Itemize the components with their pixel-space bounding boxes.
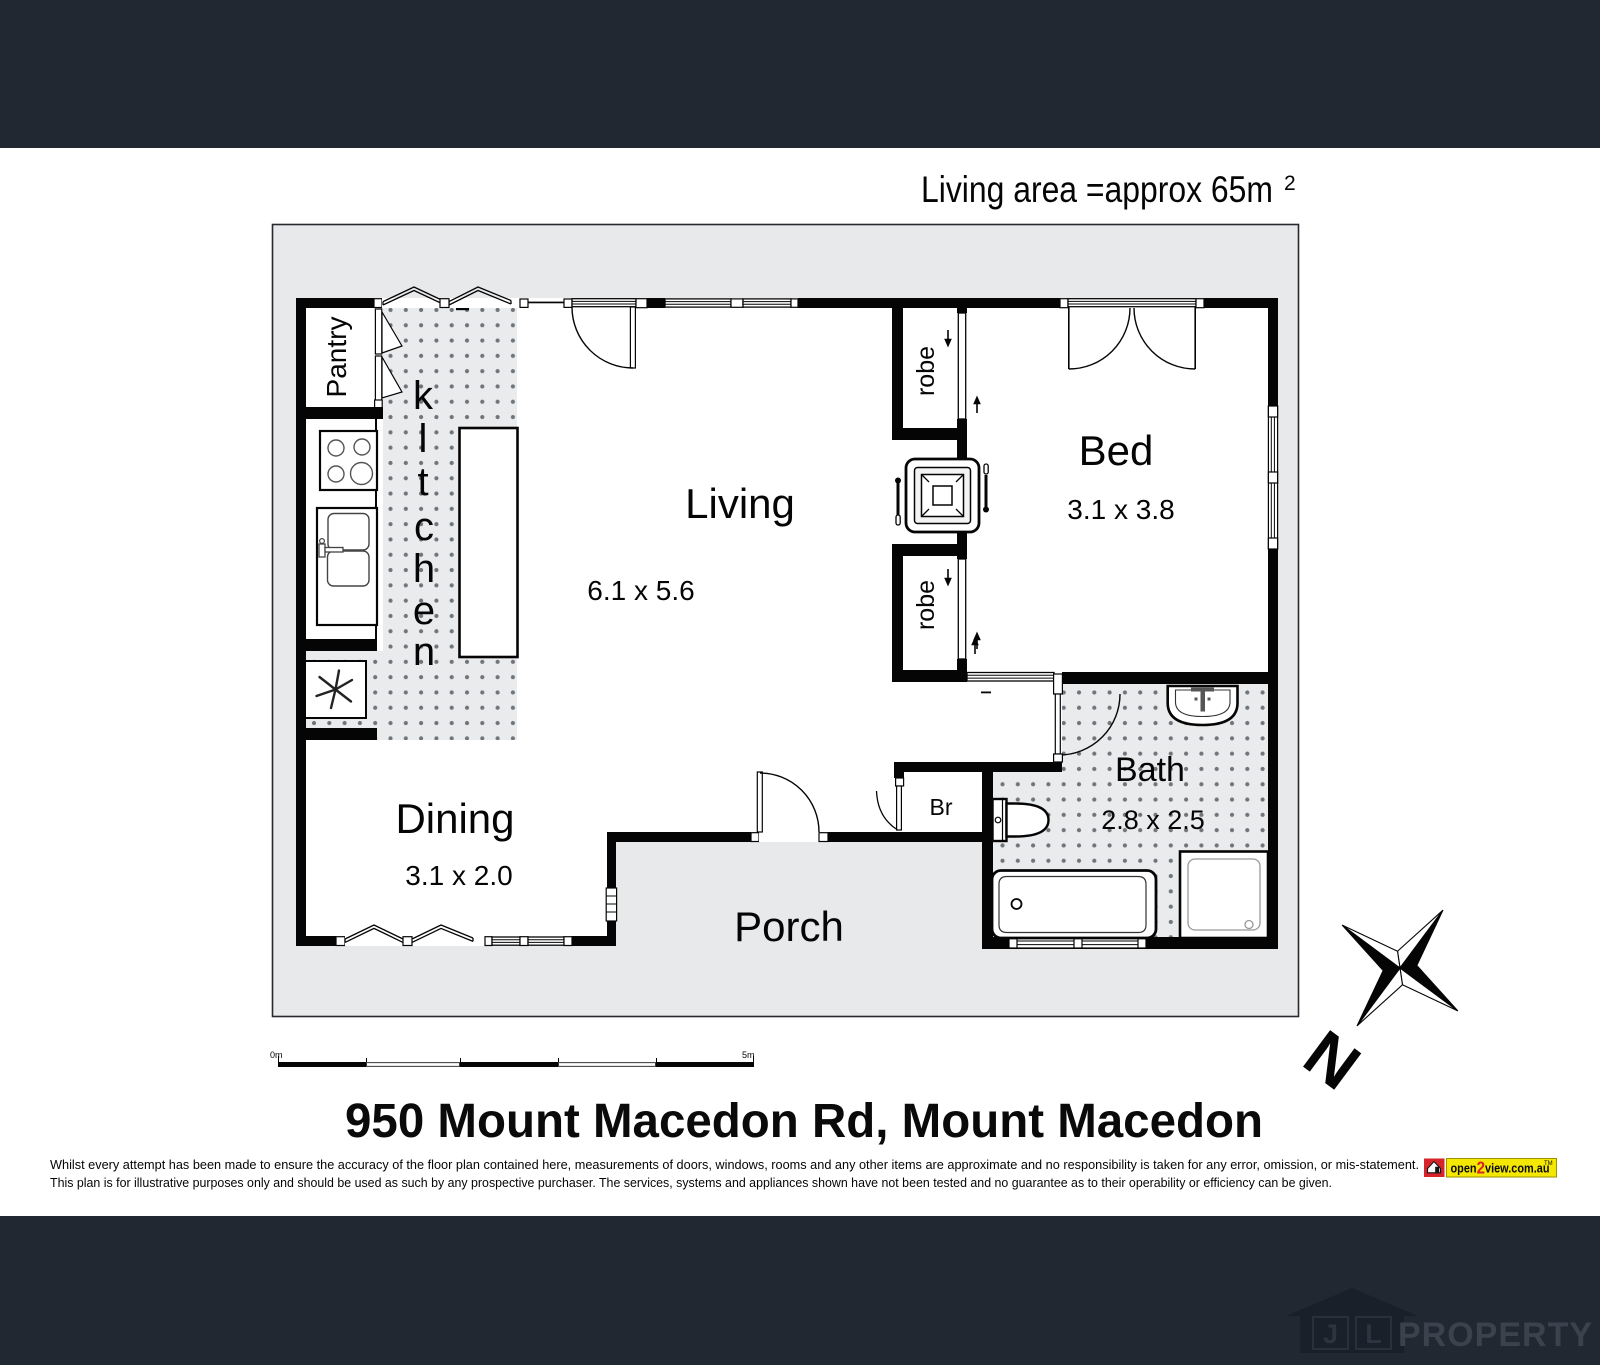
svg-text:Pantry: Pantry	[321, 317, 352, 398]
svg-text:robe: robe	[912, 346, 940, 396]
svg-text:c: c	[414, 505, 434, 549]
svg-text:This plan is for illustrative: This plan is for illustrative purposes o…	[50, 1175, 1332, 1190]
svg-text:n: n	[413, 630, 435, 674]
svg-text:0m: 0m	[270, 1050, 283, 1060]
svg-text:Whilst every attempt has been: Whilst every attempt has been made to en…	[50, 1157, 1419, 1172]
svg-text:Porch: Porch	[734, 903, 844, 950]
svg-text:J: J	[1323, 1319, 1338, 1349]
svg-text:5m: 5m	[742, 1050, 755, 1060]
svg-text:3.1 x 2.0: 3.1 x 2.0	[405, 860, 512, 891]
svg-text:TM: TM	[1544, 1161, 1553, 1167]
svg-text:t: t	[417, 460, 428, 504]
svg-text:Br: Br	[930, 794, 953, 820]
svg-text:L: L	[1365, 1319, 1382, 1349]
svg-text:l: l	[419, 417, 428, 461]
svg-text:6.1 x 5.6: 6.1 x 5.6	[587, 575, 694, 606]
svg-text:h: h	[413, 547, 435, 591]
svg-text:Dining: Dining	[395, 795, 514, 842]
svg-text:2: 2	[1284, 172, 1296, 195]
svg-text:Living: Living	[685, 480, 795, 527]
svg-text:2.8 x 2.5: 2.8 x 2.5	[1101, 805, 1205, 835]
svg-text:robe: robe	[912, 580, 940, 630]
svg-text:Living area =approx 65m: Living area =approx 65m	[921, 169, 1273, 210]
svg-text:950 Mount Macedon Rd, Mount Ma: 950 Mount Macedon Rd, Mount Macedon	[345, 1095, 1263, 1148]
svg-text:PROPERTY: PROPERTY	[1398, 1316, 1593, 1354]
svg-text:Bed: Bed	[1079, 427, 1154, 474]
svg-text:e: e	[413, 589, 435, 633]
svg-text:3.1 x 3.8: 3.1 x 3.8	[1067, 494, 1174, 525]
svg-text:k: k	[413, 374, 434, 418]
svg-text:Bath: Bath	[1115, 751, 1185, 789]
